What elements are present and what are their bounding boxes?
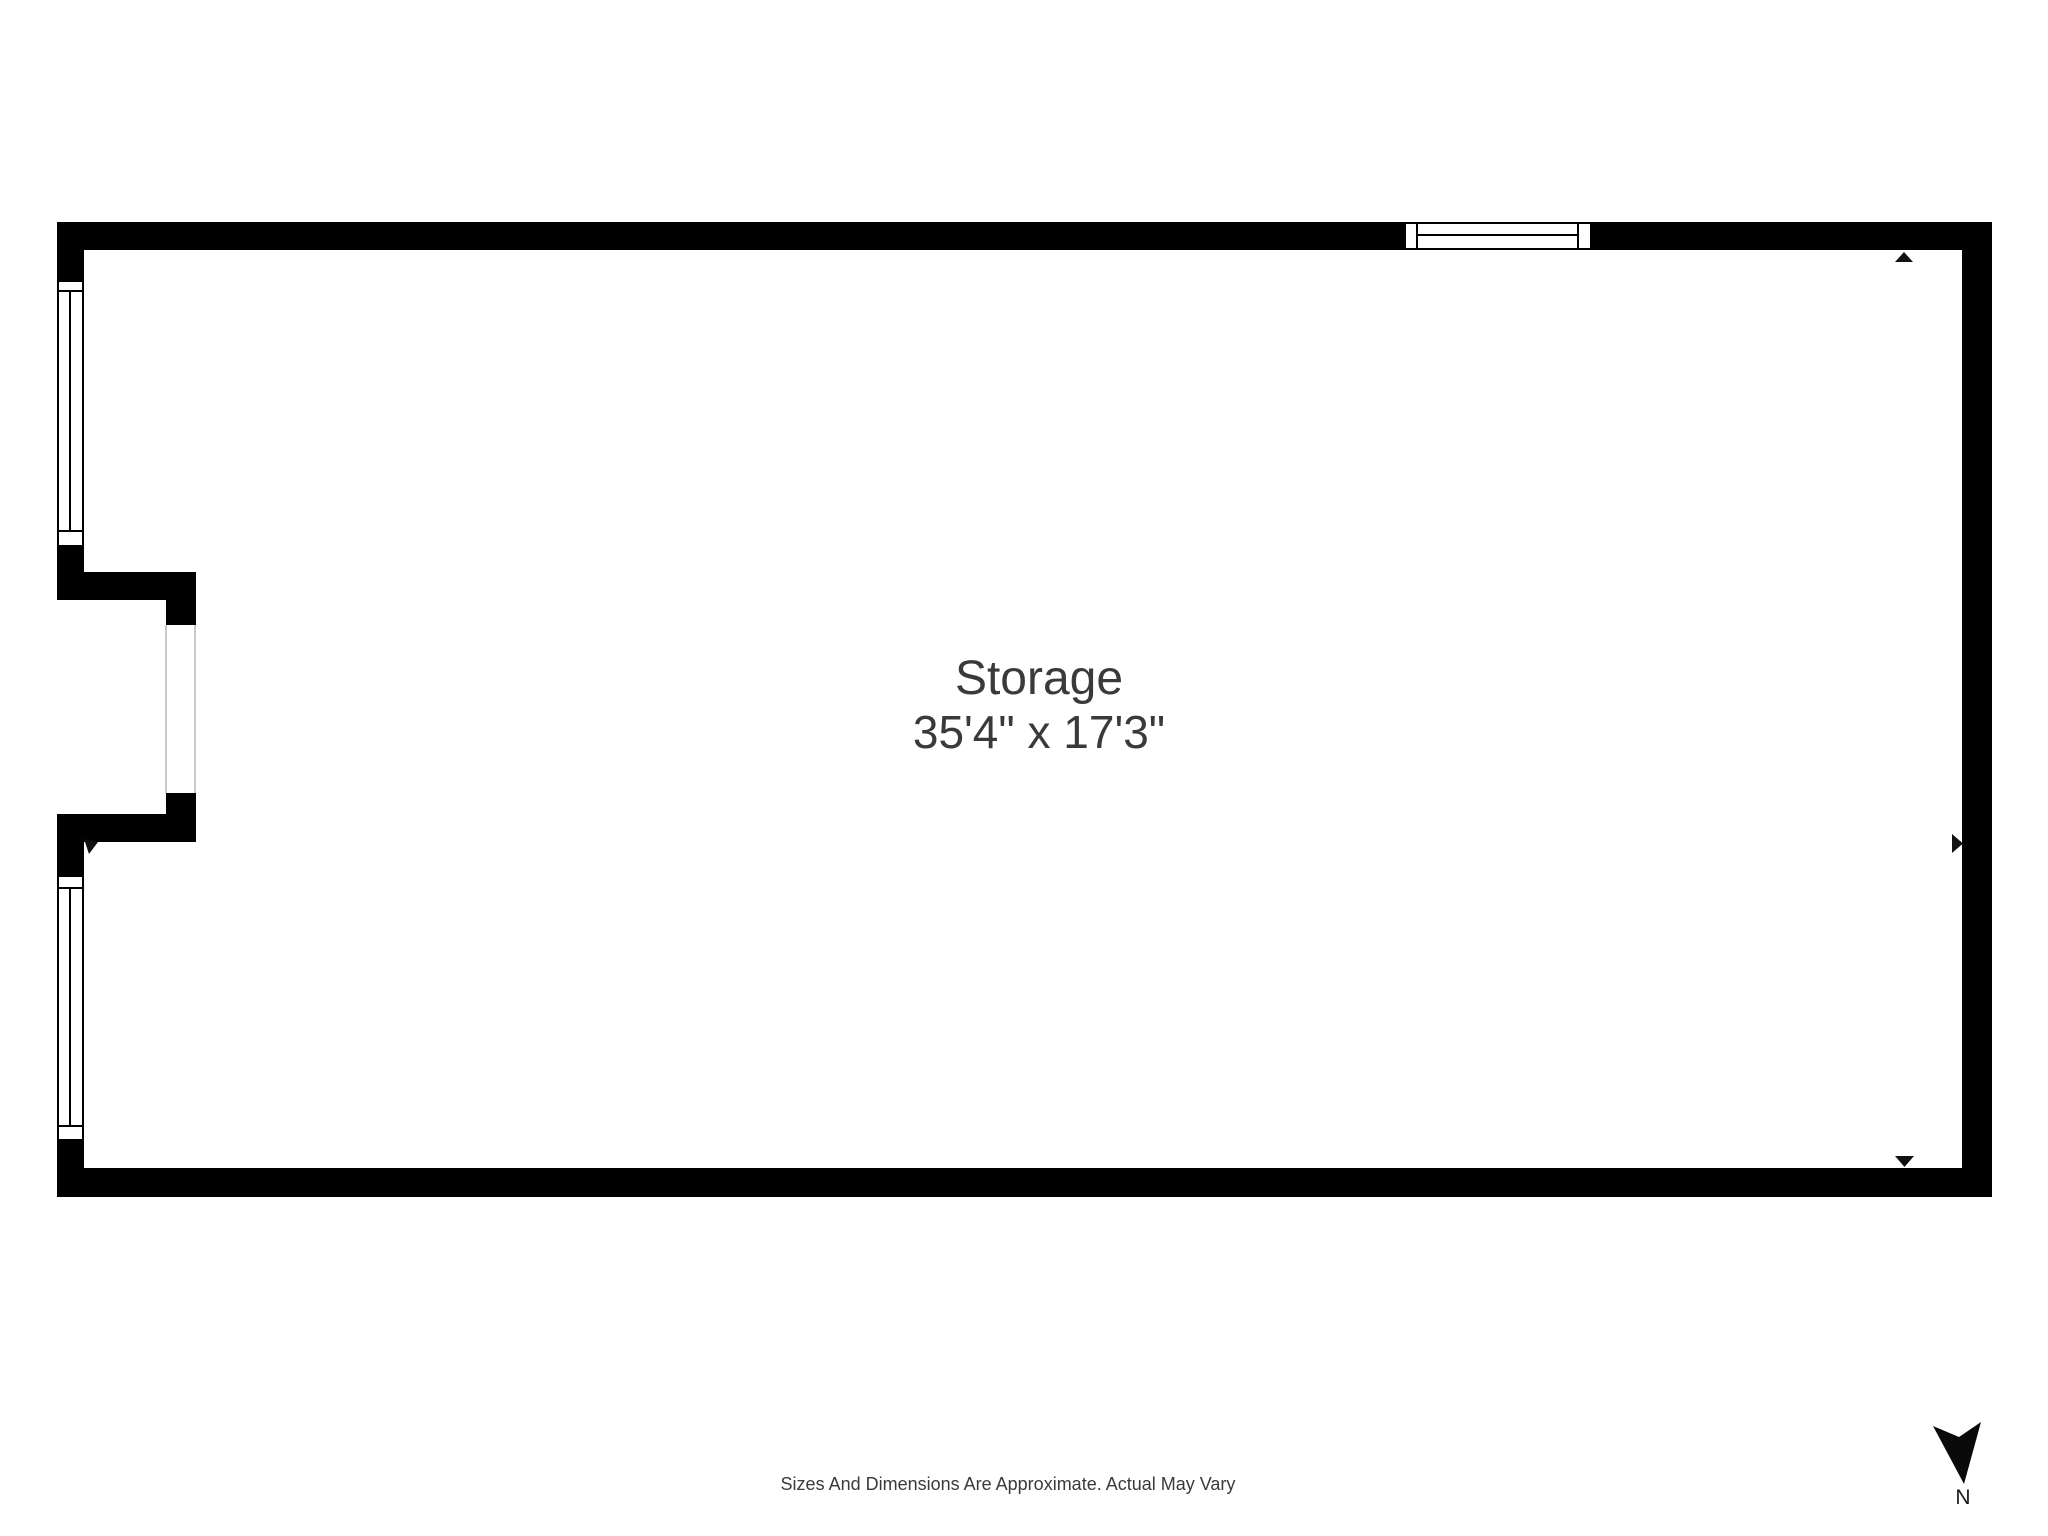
wall-arrow-right-icon (1952, 834, 1963, 853)
window-top-center-line (1418, 234, 1577, 236)
window-top-cap-line (1416, 222, 1418, 250)
window-top-cap-line (1577, 222, 1579, 250)
window-top (1404, 222, 1592, 250)
window-left-lower-cap-line (57, 1125, 84, 1127)
wall-arrow-bottom-icon (1895, 1156, 1914, 1167)
wall-top (57, 222, 1992, 250)
alcove-bottom-wall (57, 814, 196, 842)
wall-bottom (57, 1168, 1992, 1197)
compass-north-label: N (1943, 1486, 1983, 1510)
wall-opening (165, 625, 196, 793)
window-left-lower-center-line (69, 889, 71, 1125)
room-label: Storage 35'4" x 17'3" (739, 652, 1339, 758)
wall-right (1962, 222, 1992, 1197)
wall-arrow-top-icon (1895, 252, 1913, 262)
disclaimer-text: Sizes And Dimensions Are Approximate. Ac… (0, 1474, 2016, 1495)
window-left-upper-center-line (69, 292, 71, 530)
room-dimensions: 35'4" x 17'3" (739, 706, 1339, 758)
north-arrow-icon (1925, 1413, 1985, 1488)
window-left-upper-cap-line (57, 530, 84, 532)
room-name: Storage (739, 652, 1339, 706)
alcove-top-jamb-wall (166, 572, 196, 625)
floorplan-canvas: Storage 35'4" x 17'3" Sizes And Dimensio… (0, 0, 2048, 1536)
wall-arrow-left-icon (84, 838, 99, 855)
